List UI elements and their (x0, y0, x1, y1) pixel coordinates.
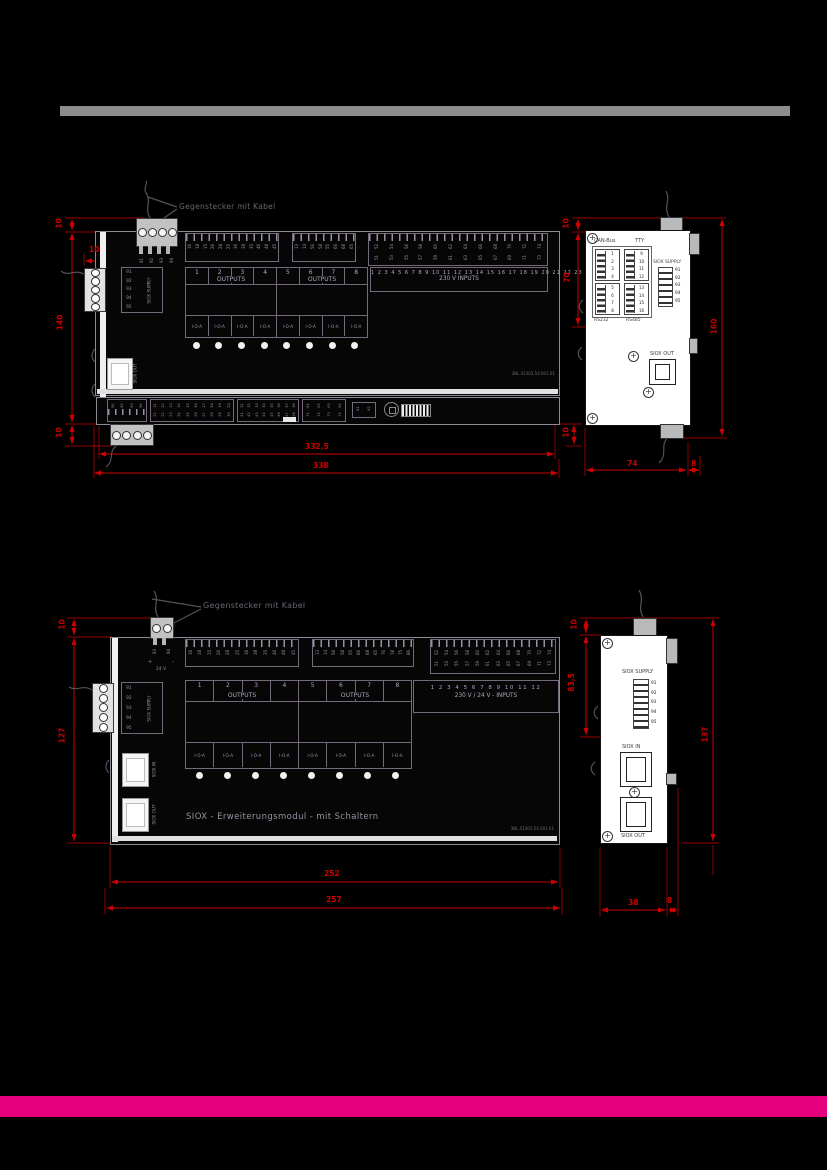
module1-bottom-plug-connector (110, 424, 154, 446)
dim-m2-side-depth: 38 (628, 898, 638, 907)
dim-m1-top: 10 (55, 218, 64, 228)
terminal-number: 20 (224, 401, 233, 408)
outputs-label: OUTPUTS (299, 692, 411, 699)
pin-label: 91 (136, 257, 147, 264)
dim-m1-side-top: 10 (562, 218, 571, 228)
siox-out-label: SIOX OUT (152, 804, 157, 824)
terminal-number: 19 (216, 401, 225, 408)
ioa-label: I-O-A (345, 316, 367, 336)
led-indicator (308, 772, 315, 779)
module1-outputs-group1: 1234 OUTPUTS I-O-AI-O-AI-O-AI-O-A (185, 267, 277, 338)
led-indicator (193, 342, 200, 349)
dim-m1-inner-width: 332,5 (305, 442, 329, 451)
dim-m2-top: 10 (58, 619, 67, 629)
terminal-number: 56 (451, 649, 462, 656)
pin-label: 94 (163, 648, 174, 655)
terminal-number: 62 (314, 401, 323, 408)
module2-side-right-tab-2 (666, 773, 677, 785)
terminal-comb (369, 234, 547, 241)
terminal-number: 74 (534, 243, 545, 250)
ioa-label: I-O-A (214, 743, 242, 767)
module1-side-right-tab-1 (689, 233, 700, 255)
pin-number: 13 (639, 285, 644, 290)
pin-label: 92 (126, 279, 131, 284)
terminal-number: 56 (401, 243, 412, 250)
pin-number: 4 (611, 274, 614, 279)
terminal-number: 66 (475, 243, 486, 250)
ioa-label: I-O-A (271, 743, 298, 767)
dim-m1-side-upper: 70 (563, 272, 572, 282)
ioa-label: I-O-A (356, 743, 384, 767)
terminal-number: 45 (288, 649, 298, 656)
strip1-numbers: 161815262825363835464845 (186, 241, 278, 252)
terminal-number: 69 (524, 660, 535, 667)
terminal-number: 74 (335, 410, 344, 417)
siox-supply-pins: 9192939495 (122, 268, 136, 312)
dim-m2-side-tab: 8 (667, 896, 672, 905)
pin-label: 93 (126, 706, 131, 711)
module1-bottom-group0: 91929394 (107, 399, 147, 422)
terminal-number: 58 (462, 649, 473, 656)
strip2-numbers: 1314565855666865 (293, 241, 355, 252)
module2-top-plug-stubs (153, 638, 170, 645)
terminal-number: 71 (304, 410, 313, 417)
module2-siox-supply-connector (92, 683, 114, 733)
terminal-number: 70 (524, 649, 535, 656)
outputs-label: OUTPUTS (277, 276, 367, 283)
led-indicator (283, 342, 290, 349)
module2-din-rail (112, 638, 118, 842)
rs232-connector-upper: 1234 (595, 249, 620, 281)
module2-top-plug-pin-labels: 9394 (147, 646, 175, 657)
terminal-number: 61 (445, 254, 456, 261)
datasheet-page: Gegenstecker mit Kabel 91929394 16181526… (0, 0, 827, 1170)
dim-m1-height: 140 (55, 315, 64, 331)
terminal-number: 48 (290, 410, 298, 417)
module2-inputs-box: 1 2 3 4 5 6 7 8 9 10 11 12 230 V / 24 V … (413, 680, 559, 713)
module1-outputs-group2: 5678 OUTPUTS I-O-AI-O-AI-O-AI-O-A (276, 267, 368, 338)
strip3-bottom-numbers: 515355575961636567697173 (431, 658, 555, 669)
screw-icon (628, 351, 639, 362)
pin-label: 92 (126, 696, 131, 701)
strip2-numbers: 131456585566686576787586 (313, 647, 413, 658)
module1-led-indicators (185, 341, 366, 349)
terminal-number: 72 (519, 243, 530, 250)
b1-bottom: 21222324252627282930 (151, 409, 233, 418)
ioa-label: I-O-A (243, 743, 271, 767)
screw-icon (602, 638, 613, 649)
dimension-overlay (0, 0, 827, 1170)
module1-siox-out-labelwrap: SIOX OUT (128, 358, 142, 388)
strip1-numbers: 161815262825363835464845 (186, 647, 298, 658)
pin-number: 9 (640, 251, 643, 256)
pin-label: 91 (651, 681, 656, 686)
pin-label: 95 (126, 305, 131, 310)
module2-outputs-group2: 5678 OUTPUTS I-O-AI-O-AI-O-AI-O-A (298, 680, 412, 769)
canbus-label: CAN-Bus (594, 238, 615, 244)
rs485-label: RS485 (626, 318, 641, 323)
tty-label: TTY (635, 238, 644, 244)
module1-din-rail (100, 232, 106, 423)
terminal-number: 64 (335, 401, 344, 408)
module2-title: SIOX - Erweiterungsmodul - mit Schaltern (186, 812, 379, 822)
pin-label: 91 (675, 268, 680, 273)
pin-number: 15 (639, 300, 644, 305)
module2-siox-supply-labelbox: 9192939495 SIOX SUPPLY (121, 682, 163, 734)
terminal-number: 65 (475, 254, 486, 261)
outputs-label: OUTPUTS (186, 692, 298, 699)
siox-supply-label: SIOX SUPPLY (622, 669, 653, 675)
b1-top: 11121314151617181920 (151, 400, 233, 409)
dim-m1-side-depth: 74 (627, 459, 637, 468)
terminal-comb (186, 640, 298, 647)
pin-label: 94 (651, 710, 656, 715)
terminal-number: 67 (490, 254, 501, 261)
pin-label: 91 (126, 686, 131, 691)
pin-number: 11 (639, 266, 644, 271)
terminal-number: 53 (386, 254, 397, 261)
ioa-label: I-O-A (300, 316, 323, 336)
annotation-module2: Gegenstecker mit Kabel (203, 601, 305, 610)
terminal-number: 73 (325, 410, 334, 417)
terminal-number: 81 (354, 404, 363, 411)
dim-m1-bottom-left: 10 (55, 427, 64, 437)
module2-led-indicators (185, 771, 410, 780)
magenta-footer-bar (0, 1096, 827, 1117)
terminal-number: 29 (216, 410, 225, 417)
b0-numbers: 91929394 (108, 400, 146, 409)
pin-number: 6 (611, 293, 614, 298)
terminal-number: 63 (493, 660, 504, 667)
rotary-address-switch-icon (384, 402, 399, 417)
siox-supply-pins: 9192939495 (122, 683, 136, 733)
module2-terminal-strip-3: 525456586062646668707274 515355575961636… (430, 639, 556, 674)
terminal-number: 64 (460, 243, 471, 250)
terminal-number: 62 (445, 243, 456, 250)
module1-siox-supply-connector (84, 268, 106, 312)
terminal-number: 62 (482, 649, 493, 656)
terminal-comb (431, 640, 555, 647)
outputs-body (186, 285, 276, 316)
terminal-number: 55 (401, 254, 412, 261)
module1-bottom-rim (97, 389, 558, 394)
module1-side-bottom-tab (660, 424, 684, 439)
module2-side-supply-pins: 9192939495 (651, 679, 656, 727)
module1-side-siox-out-jack (649, 359, 676, 385)
led-indicator (364, 772, 371, 779)
pin-number: 8 (611, 308, 614, 313)
module2-voltage-label: 24 V (148, 667, 174, 672)
pin-number: 12 (639, 274, 644, 279)
screw-icon (587, 413, 598, 424)
b2-top: 3132333435363738 (238, 400, 298, 409)
ioa-label: I-O-A (323, 316, 346, 336)
terminal-number: 93 (127, 401, 136, 408)
b3-bottom: 71727374 (303, 409, 345, 418)
pins-13-16: 13141516 (635, 284, 648, 314)
pins-1-4: 1234 (606, 250, 619, 280)
led-indicator (261, 342, 268, 349)
pins-9-12: 9101112 (635, 250, 648, 280)
led-indicator (224, 772, 231, 779)
module1-top-plug-pin-labels: 91929394 (136, 255, 176, 266)
module1-side-right-tab-2 (689, 338, 698, 354)
dim-m2-side-upper: 83,5 (567, 673, 576, 692)
ioa-label: I-O-A (299, 743, 327, 767)
terminal-number: 86 (403, 649, 413, 656)
pins-5-8: 5678 (606, 284, 619, 314)
siox-out-label: SIOX OUT (133, 363, 138, 383)
dim-m2-side-height: 137 (700, 727, 709, 743)
module2-siox-in-jack (122, 753, 149, 787)
terminal-number: 61 (304, 401, 313, 408)
module2-siox-out-labelwrap: SIOX OUT (147, 798, 161, 830)
outputs-body (299, 702, 411, 743)
rs485-connector-lower: 13141516 (624, 283, 649, 315)
pin-label: 93 (126, 287, 131, 292)
ioa-row: I-O-AI-O-AI-O-AI-O-A (186, 743, 298, 767)
terminal-number: 54 (386, 243, 397, 250)
led-indicator (351, 342, 358, 349)
pin-number: 3 (611, 266, 614, 271)
terminal-comb (108, 409, 146, 415)
terminal-number: 94 (137, 401, 146, 408)
ioa-row: I-O-AI-O-AI-O-AI-O-A (186, 316, 276, 336)
pin-label: 92 (146, 257, 157, 264)
ioa-label: I-O-A (209, 316, 232, 336)
terminal-comb (293, 234, 355, 241)
ioa-label: I-O-A (232, 316, 255, 336)
dim-m1-side-tab: 8 (691, 459, 696, 468)
module1-part-number: 3NL.41303.54.001.01 (495, 371, 555, 376)
led-indicator (392, 772, 399, 779)
screw-icon (643, 387, 654, 398)
led-indicator (329, 342, 336, 349)
strip3-top-numbers: 525456586062646668707274 (369, 241, 547, 252)
siox-out-label: SIOX OUT (621, 833, 645, 839)
input-numbers: 1 2 3 4 5 6 7 8 9 10 11 12 (414, 685, 558, 691)
pin-number: 1 (611, 251, 614, 256)
pin-number: 5 (611, 285, 614, 290)
module2-terminal-strip-2: 131456585566686576787586 (312, 639, 414, 667)
ioa-label: I-O-A (186, 743, 214, 767)
gray-separator-bar (60, 106, 790, 116)
pin-label: 94 (126, 716, 131, 721)
dip-switch-icon (401, 404, 431, 417)
terminal-number: 59 (430, 254, 441, 261)
terminal-number: 68 (513, 649, 524, 656)
module1-inputs-box: 1 2 3 4 5 6 7 8 9 10 11 12 13 14 15 16 1… (370, 267, 548, 292)
terminal-comb (313, 640, 413, 647)
led-indicator (252, 772, 259, 779)
terminal-number: 64 (493, 649, 504, 656)
pin-label: 91 (126, 270, 131, 275)
terminal-number: 73 (544, 660, 555, 667)
minus-sign: - (172, 659, 174, 665)
dim-m1-conn: 10 (89, 245, 99, 254)
terminal-number: 38 (290, 401, 298, 408)
module2-side-right-tab-1 (666, 638, 678, 664)
pin-label: 93 (156, 257, 167, 264)
siox-supply-label: SIOX SUPPLY (146, 695, 151, 721)
module2-side-siox-in-jack (620, 752, 652, 787)
pin-number: 16 (639, 308, 644, 313)
terminal-comb (186, 234, 278, 241)
strip3-top-numbers: 525456586062646668707274 (431, 647, 555, 658)
terminal-number: 68 (490, 243, 501, 250)
pin-label: 95 (651, 720, 656, 725)
terminal-number: 74 (544, 649, 555, 656)
siox-out-label: SIOX OUT (650, 351, 674, 357)
led-indicator (196, 772, 203, 779)
terminal-number: 91 (108, 401, 117, 408)
terminal-number: 51 (371, 254, 382, 261)
module1-bottom-white-tag (283, 417, 296, 422)
led-indicator (280, 772, 287, 779)
module2-side-siox-supply-connector (633, 679, 649, 729)
terminal-number: 63 (460, 254, 471, 261)
module1-bottom-group4: 8182 (352, 402, 376, 418)
pin-label: 92 (675, 276, 680, 281)
dim-m1-bottom-right: 10 (562, 427, 571, 437)
outputs-body (186, 702, 298, 743)
terminal-number: 65 (346, 243, 355, 250)
dim-m2-outer-width: 257 (326, 895, 342, 904)
module1-side-supply-pins: 9192939495 (675, 267, 680, 305)
terminal-number: 52 (371, 243, 382, 250)
pin-number: 14 (639, 293, 644, 298)
module2-top-plug-connector (150, 617, 174, 639)
ioa-label: I-O-A (384, 743, 411, 767)
plus-sign: + (148, 659, 152, 665)
terminal-number: 57 (415, 254, 426, 261)
outputs-body (277, 285, 367, 316)
inputs-label: 230 V INPUTS (371, 276, 547, 282)
terminal-number: 61 (482, 660, 493, 667)
led-indicator (336, 772, 343, 779)
dim-m1-outer-width: 338 (313, 461, 329, 470)
pin-label: 95 (126, 726, 131, 731)
terminal-number: 82 (365, 404, 374, 411)
rs232-label: RS232 (594, 318, 609, 323)
terminal-number: 55 (451, 660, 462, 667)
module2-siox-out-jack (122, 798, 149, 832)
dim-m2-inner-width: 252 (324, 869, 340, 878)
pin-label: 94 (166, 257, 177, 264)
siox-supply-label: SIOX SUPPLY (653, 260, 681, 265)
module1-top-plug-connector (136, 218, 178, 247)
terminal-number: 70 (504, 243, 515, 250)
terminal-number: 71 (519, 254, 530, 261)
b3-top: 61626364 (303, 400, 345, 409)
module2-side-siox-out-jack (620, 797, 652, 832)
terminal-number: 72 (314, 410, 323, 417)
ioa-label: I-O-A (277, 316, 300, 336)
pin-label: 93 (675, 283, 680, 288)
terminal-number: 45 (269, 243, 278, 250)
ioa-label: I-O-A (327, 743, 355, 767)
module1-side-siox-supply-connector (658, 267, 673, 307)
module1-bottom-group1: 11121314151617181920 2122232425262728293… (150, 399, 234, 422)
dim-m2-side-top: 10 (570, 619, 579, 629)
terminal-number: 60 (430, 243, 441, 250)
terminal-number: 57 (462, 660, 473, 667)
led-indicator (238, 342, 245, 349)
screw-icon (602, 831, 613, 842)
terminal-number: 92 (118, 401, 127, 408)
pin-label: 94 (675, 291, 680, 296)
outputs-label: OUTPUTS (186, 276, 276, 283)
rs232-connector-lower: 5678 (595, 283, 620, 315)
pin-label: 92 (651, 691, 656, 696)
pin-label: 93 (149, 648, 160, 655)
terminal-number: 69 (504, 254, 515, 261)
module1-top-plug-stubs (139, 246, 174, 254)
siox-in-label: SIOX IN (622, 744, 641, 750)
inputs-label: 230 V / 24 V - INPUTS (414, 693, 558, 699)
ioa-row: I-O-AI-O-AI-O-AI-O-A (277, 316, 367, 336)
led-indicator (306, 342, 313, 349)
module1-bottom-group3: 61626364 71727374 (302, 399, 346, 422)
strip3-bottom-numbers: 515355575961636567697173 (369, 252, 547, 263)
pin-number: 7 (611, 300, 614, 305)
siox-in-label: SIOX IN (152, 761, 157, 777)
pin-number: 2 (611, 259, 614, 264)
module1-terminal-strip-3: 525456586062646668707274 515355575961636… (368, 233, 548, 266)
terminal-number: 58 (415, 243, 426, 250)
pin-label: 94 (126, 296, 131, 301)
ioa-label: I-O-A (254, 316, 276, 336)
pin-label: 93 (651, 700, 656, 705)
module2-part-number: 3NL.51303.54.001.01 (490, 826, 554, 831)
led-indicator (215, 342, 222, 349)
module2-siox-in-labelwrap: SIOX IN (147, 753, 161, 785)
rs485-connector-upper: 9101112 (624, 249, 649, 281)
module1-terminal-strip-1: 161815262825363835464845 (185, 233, 279, 262)
ioa-label: I-O-A (186, 316, 209, 336)
module1-terminal-strip-2: 1314565855666865 (292, 233, 356, 262)
terminal-number: 63 (325, 401, 334, 408)
terminal-number: 67 (513, 660, 524, 667)
module2-terminal-strip-1: 161815262825363835464845 (185, 639, 299, 667)
terminal-number: 73 (534, 254, 545, 261)
annotation-module1: Gegenstecker mit Kabel (179, 202, 275, 211)
ioa-row: I-O-AI-O-AI-O-AI-O-A (299, 743, 411, 767)
module2-outputs-group1: 1234 OUTPUTS I-O-AI-O-AI-O-AI-O-A (185, 680, 299, 769)
module1-siox-supply-labelbox: 9192939495 SIOX SUPPLY (121, 267, 163, 313)
dim-m1-side-height: 160 (709, 319, 718, 335)
siox-supply-label: SIOX SUPPLY (146, 277, 151, 303)
pin-label: 95 (675, 299, 680, 304)
pin-number: 10 (639, 259, 644, 264)
dim-m2-height: 127 (57, 728, 66, 744)
module2-bottom-rim (112, 836, 557, 841)
module2-polarity-row: + - (148, 659, 174, 665)
terminal-number: 30 (224, 410, 233, 417)
